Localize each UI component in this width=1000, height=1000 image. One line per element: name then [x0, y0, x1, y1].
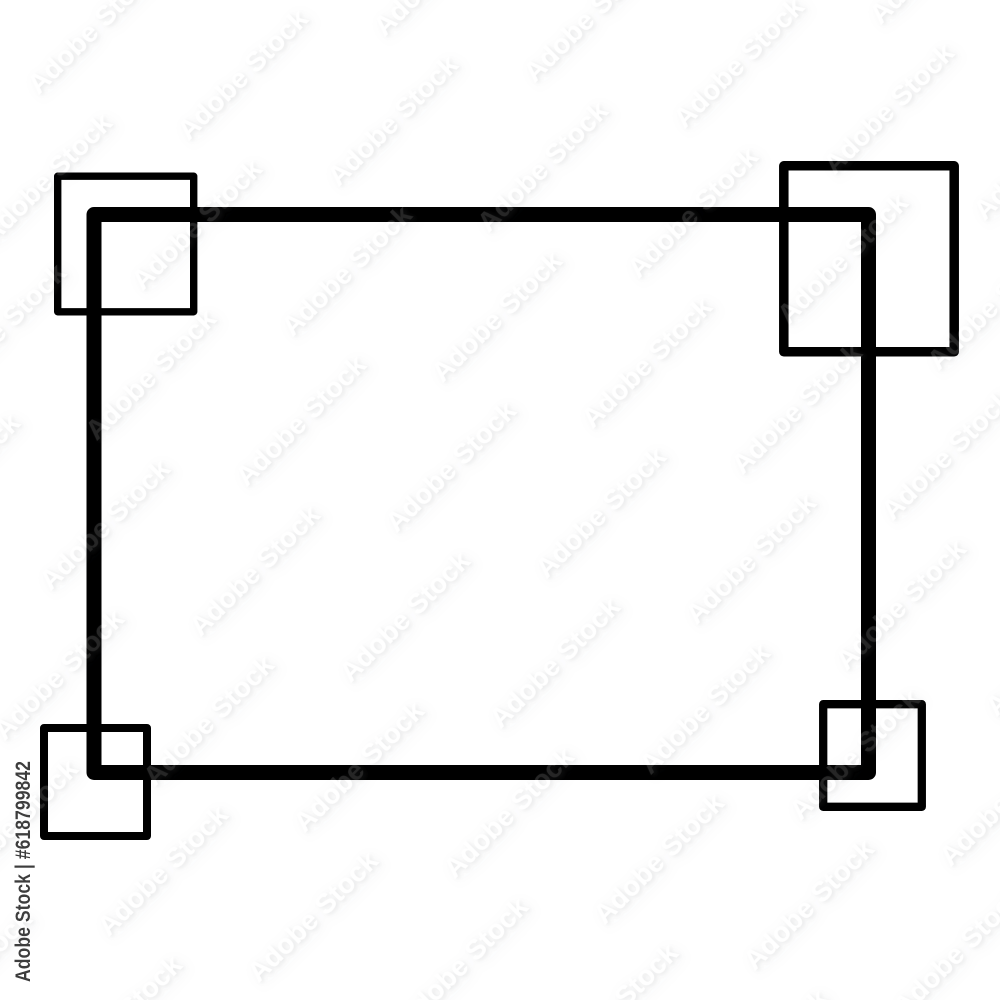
svg-text:Adobe Stock | #618799842: Adobe Stock | #618799842 — [12, 761, 35, 982]
